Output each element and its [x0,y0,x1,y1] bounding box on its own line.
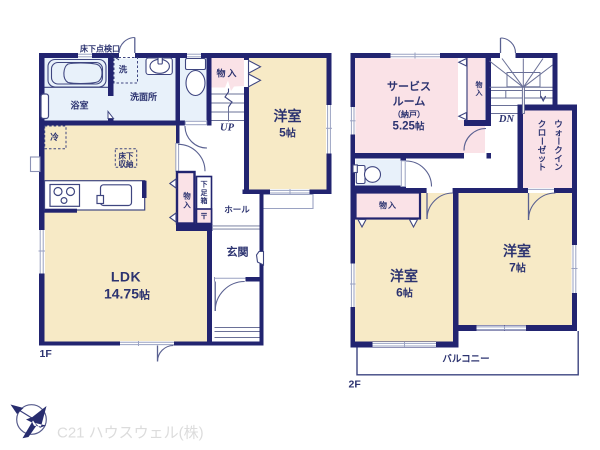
svg-text:物: 物 [183,191,191,201]
svg-text:2F: 2F [349,379,362,391]
svg-text:ン: ン [554,162,563,172]
svg-text:物入: 物入 [216,68,238,79]
svg-text:7帖: 7帖 [509,261,526,275]
svg-text:洗: 洗 [119,65,128,75]
svg-text:洋室: 洋室 [274,108,302,124]
svg-text:ホール: ホール [224,205,250,215]
svg-text:洗面所: 洗面所 [130,91,157,102]
svg-text:6帖: 6帖 [396,286,413,300]
svg-text:UP: UP [220,123,235,134]
svg-text:DN: DN [498,114,515,125]
svg-text:〒: 〒 [200,212,208,221]
svg-text:足: 足 [201,189,209,197]
svg-text:C21 ハウスウェル(株): C21 ハウスウェル(株) [57,425,204,442]
svg-text:箱: 箱 [201,196,208,205]
svg-text:下: 下 [201,181,208,189]
svg-text:サービス: サービス [387,79,431,93]
svg-text:5.25帖: 5.25帖 [393,121,425,133]
svg-text:入: 入 [475,89,483,97]
svg-text:浴室: 浴室 [70,100,88,111]
svg-text:玄関: 玄関 [227,245,249,259]
svg-text:物: 物 [476,80,483,89]
svg-text:ト: ト [538,162,547,172]
svg-text:収納: 収納 [119,159,134,169]
svg-text:LDK: LDK [111,269,141,285]
svg-text:ルーム: ルーム [393,95,426,108]
svg-text:5帖: 5帖 [279,126,296,140]
svg-text:洋室: 洋室 [390,268,418,284]
svg-text:（納戸）: （納戸） [393,109,425,119]
svg-text:入: 入 [182,201,191,210]
svg-text:床下点検口: 床下点検口 [80,44,120,54]
svg-text:バルコニー: バルコニー [442,353,489,365]
svg-text:物入: 物入 [379,200,397,210]
svg-text:1F: 1F [40,348,53,360]
svg-text:洋室: 洋室 [503,243,531,259]
svg-text:冷: 冷 [50,132,59,142]
